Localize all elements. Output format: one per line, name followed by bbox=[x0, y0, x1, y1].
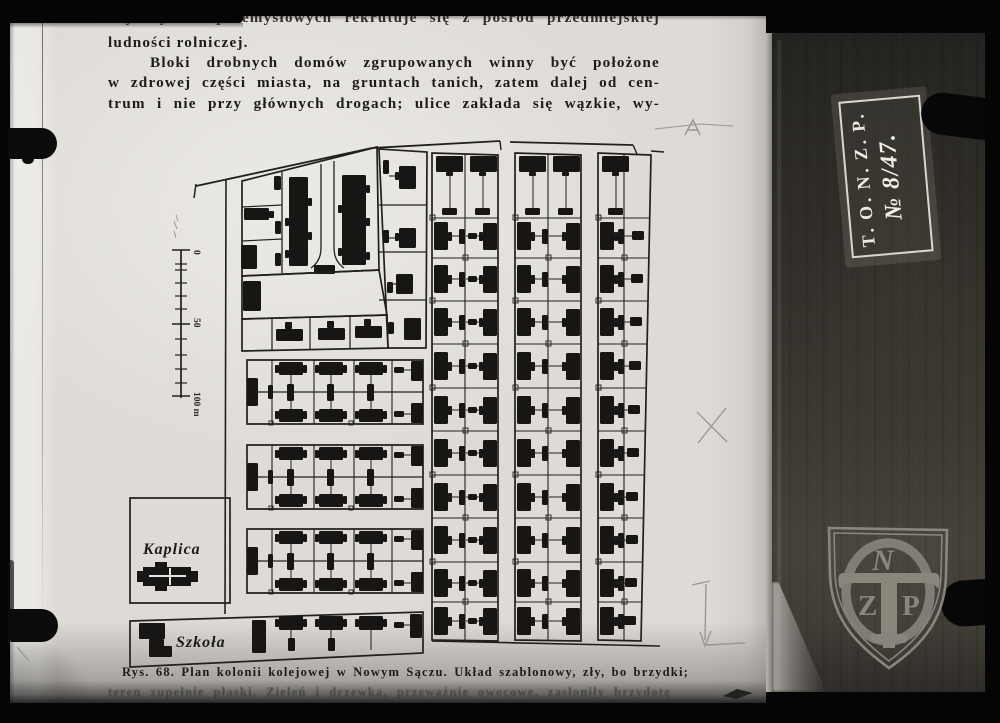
svg-text:P: P bbox=[902, 590, 920, 622]
svg-text:N: N bbox=[871, 544, 895, 577]
svg-text:Z: Z bbox=[858, 590, 877, 622]
